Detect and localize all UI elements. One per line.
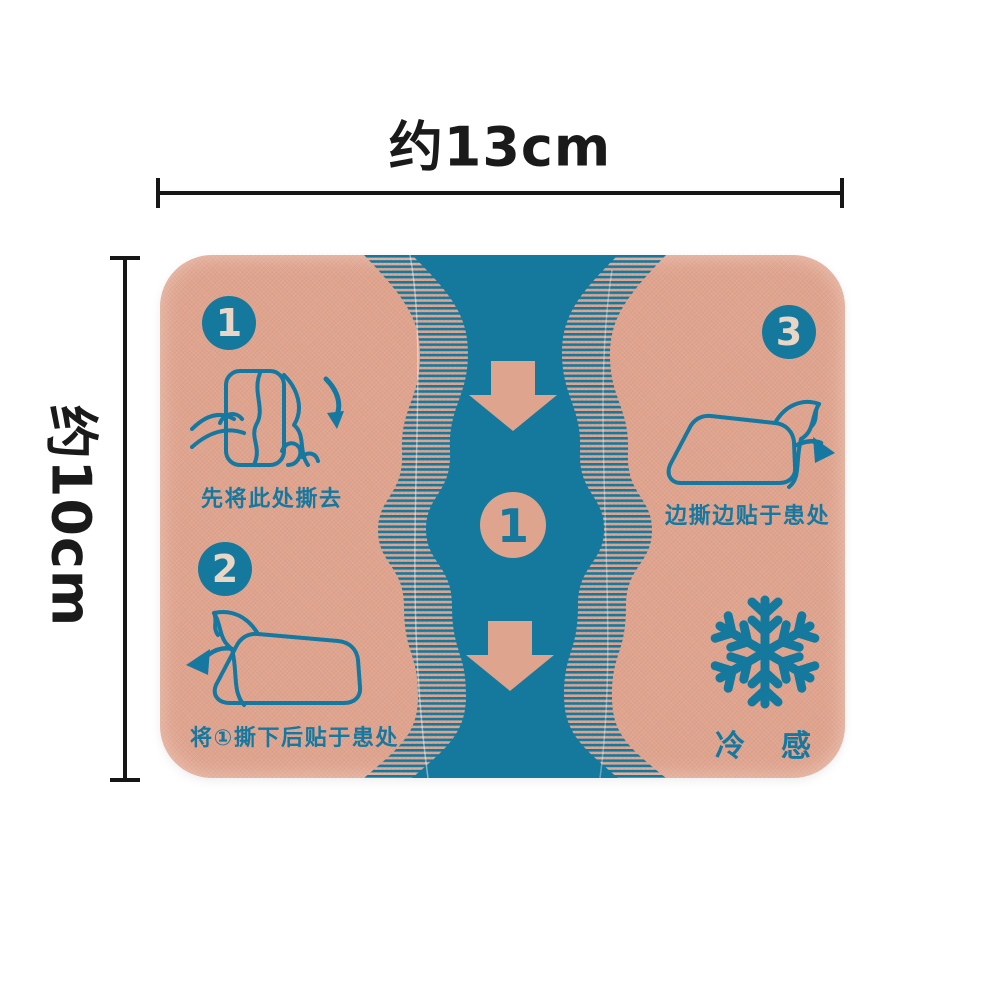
step-3-caption: 边撕边贴于患处 <box>665 498 830 530</box>
height-dimension-label: 约10cm <box>37 405 116 627</box>
cold-sensation-label: 冷感 <box>697 721 847 765</box>
step-3-number: 3 <box>776 313 802 351</box>
step-1-badge: 1 <box>202 296 256 350</box>
step-1-number: 1 <box>216 304 242 342</box>
step-2-badge: 2 <box>198 542 252 596</box>
width-measure-cap-right <box>840 178 844 208</box>
cooling-patch: 1 1 先将此处撕去 2 将①撕下后 <box>160 255 845 778</box>
center-tab-number: 1 <box>497 499 529 553</box>
height-measure-cap-bottom <box>110 778 140 782</box>
width-measure-cap-left <box>156 178 160 208</box>
peel-patch-left-icon <box>178 603 373 715</box>
product-image: 约13cm 约10cm 1 <box>0 0 1000 1000</box>
step-1-caption: 先将此处撕去 <box>201 481 343 513</box>
height-measure-line <box>123 258 127 780</box>
width-dimension-label: 约13cm <box>389 103 611 182</box>
peel-patch-right-icon <box>663 393 838 493</box>
hands-peel-icon <box>190 365 350 477</box>
step-2-number: 2 <box>212 550 238 588</box>
step-2-caption: 将①撕下后贴于患处 <box>190 720 399 752</box>
height-measure-cap-top <box>110 256 140 260</box>
step-3-badge: 3 <box>762 305 816 359</box>
snowflake-icon <box>700 587 830 717</box>
width-measure-line <box>158 191 842 195</box>
